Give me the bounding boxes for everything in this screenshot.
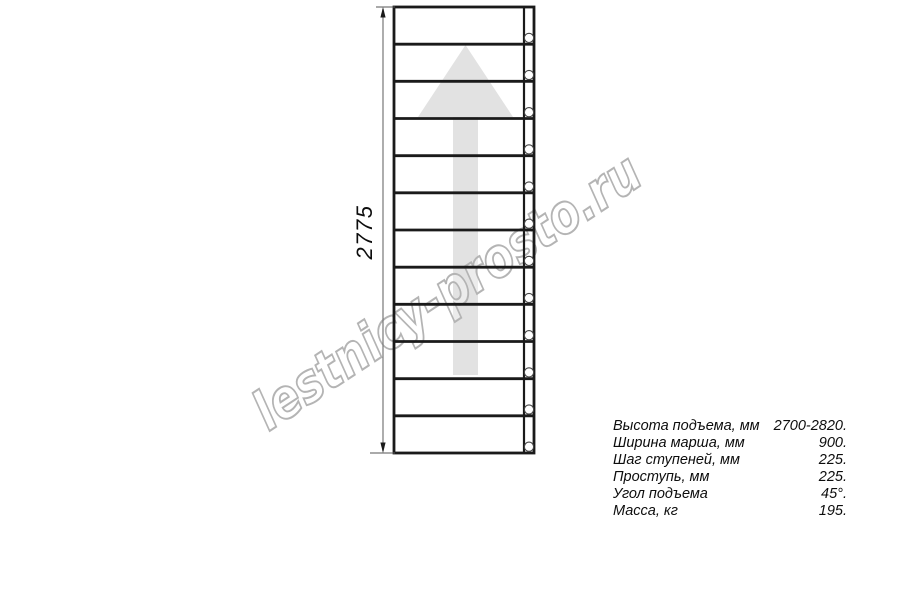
spec-value: 45°. xyxy=(811,486,847,503)
stringer-hole xyxy=(524,219,533,228)
spec-value: 225. xyxy=(809,452,847,469)
spec-row: Ширина марша, мм 900. xyxy=(613,435,847,452)
spec-table: Высота подъема, мм 2700-2820. Ширина мар… xyxy=(613,418,847,520)
spec-value: 195. xyxy=(809,503,847,520)
stringer-hole xyxy=(524,331,533,340)
spec-row: Угол подъема 45°. xyxy=(613,486,847,503)
stringer-hole xyxy=(524,442,533,451)
spec-value: 900. xyxy=(809,435,847,452)
spec-label: Угол подъема xyxy=(613,486,708,503)
spec-row: Высота подъема, мм 2700-2820. xyxy=(613,418,847,435)
stringer-hole xyxy=(524,256,533,265)
spec-row: Проступь, мм 225. xyxy=(613,469,847,486)
spec-value: 2700-2820. xyxy=(764,418,847,435)
dimension-arrowhead-top xyxy=(380,7,385,18)
stringer-hole xyxy=(524,293,533,302)
stringer-hole xyxy=(524,405,533,414)
spec-label: Ширина марша, мм xyxy=(613,435,745,452)
stringer-hole xyxy=(524,70,533,79)
stringer-hole xyxy=(524,108,533,117)
spec-row: Масса, кг 195. xyxy=(613,503,847,520)
spec-label: Масса, кг xyxy=(613,503,678,520)
spec-row: Шаг ступеней, мм 225. xyxy=(613,452,847,469)
dimension-arrowhead-bottom xyxy=(380,443,385,454)
spec-label: Шаг ступеней, мм xyxy=(613,452,740,469)
watermark-text: lestnicy-prosto.ru xyxy=(241,141,653,443)
stringer-hole xyxy=(524,182,533,191)
spec-label: Высота подъема, мм xyxy=(613,418,760,435)
spec-value: 225. xyxy=(809,469,847,486)
stringer-hole xyxy=(524,33,533,42)
page: lestnicy-prosto.ru 2775 Высота подъема, … xyxy=(0,0,900,600)
stringer-hole xyxy=(524,368,533,377)
stringer-hole xyxy=(524,145,533,154)
spec-label: Проступь, мм xyxy=(613,469,709,486)
dimension-label: 2775 xyxy=(352,205,377,261)
